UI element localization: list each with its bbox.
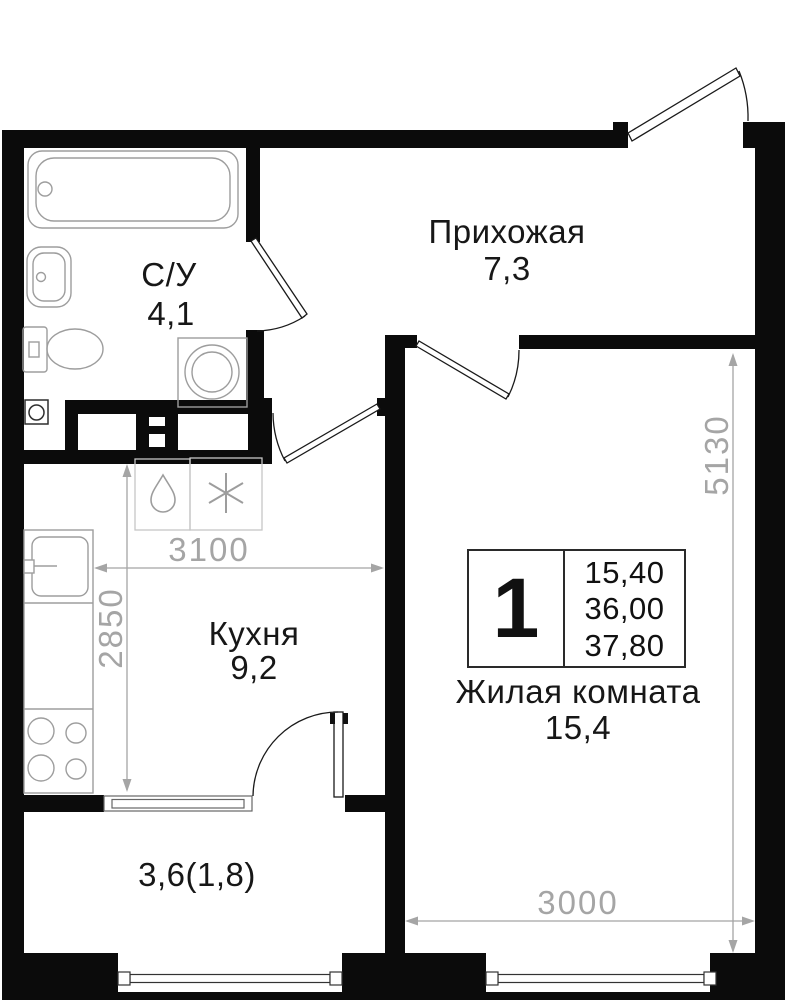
balcony-door bbox=[253, 712, 348, 797]
toilet-icon bbox=[23, 327, 103, 372]
washing-machine-icon bbox=[178, 338, 247, 407]
washbasin-icon bbox=[27, 247, 71, 307]
dimension-living-height: 5130 bbox=[698, 353, 738, 953]
total-area-value: 37,80 bbox=[584, 630, 664, 661]
balcony-exterior-window bbox=[118, 953, 342, 992]
living-room-door bbox=[416, 341, 519, 399]
kitchen-area: 9,2 bbox=[230, 651, 277, 684]
balcony-partition-window bbox=[104, 796, 252, 811]
room-count: 1 bbox=[469, 551, 563, 666]
svg-text:5130: 5130 bbox=[698, 414, 735, 495]
hallway-label: Прихожая bbox=[429, 215, 586, 248]
apartment-area-value: 36,00 bbox=[584, 593, 664, 624]
snowflake-icon bbox=[209, 473, 243, 513]
hallway-area: 7,3 bbox=[483, 252, 530, 285]
bathroom-area: 4,1 bbox=[147, 297, 194, 330]
appliance-slots bbox=[135, 458, 262, 530]
water-drop-icon bbox=[151, 475, 175, 512]
svg-text:2850: 2850 bbox=[92, 587, 129, 668]
vent-box-icon bbox=[25, 400, 48, 424]
dimension-kitchen-depth: 2850 bbox=[92, 464, 132, 792]
living-room-exterior-window bbox=[486, 953, 716, 992]
duct-shaft-openings bbox=[149, 417, 165, 447]
kitchen-door bbox=[273, 404, 380, 463]
svg-text:3000: 3000 bbox=[537, 884, 618, 921]
kitchen-label: Кухня bbox=[209, 617, 300, 650]
floor-plan: 3100 2850 5130 3000 Прихожая 7,3 С/У 4,1… bbox=[0, 0, 785, 1000]
bathroom-door bbox=[251, 238, 307, 331]
living-area-value: 15,40 bbox=[584, 557, 664, 588]
bathtub-icon bbox=[28, 151, 238, 228]
dimension-kitchen-width: 3100 bbox=[94, 531, 384, 573]
svg-text:3100: 3100 bbox=[168, 531, 249, 568]
bathroom-label: С/У bbox=[141, 258, 196, 291]
dimension-living-width: 3000 bbox=[405, 884, 755, 926]
stove-icon bbox=[28, 718, 86, 781]
apartment-areas: 15,40 36,00 37,80 bbox=[563, 551, 684, 666]
living-room-label: Жилая комната bbox=[456, 675, 701, 708]
kitchen-sink-icon bbox=[24, 537, 88, 596]
living-room-area: 15,4 bbox=[545, 711, 611, 744]
apartment-info-box: 1 15,40 36,00 37,80 bbox=[467, 549, 686, 668]
entrance-door bbox=[628, 68, 748, 141]
plan-overlay: 3100 2850 5130 3000 bbox=[0, 0, 785, 1000]
balcony-area: 3,6(1,8) bbox=[138, 858, 256, 891]
